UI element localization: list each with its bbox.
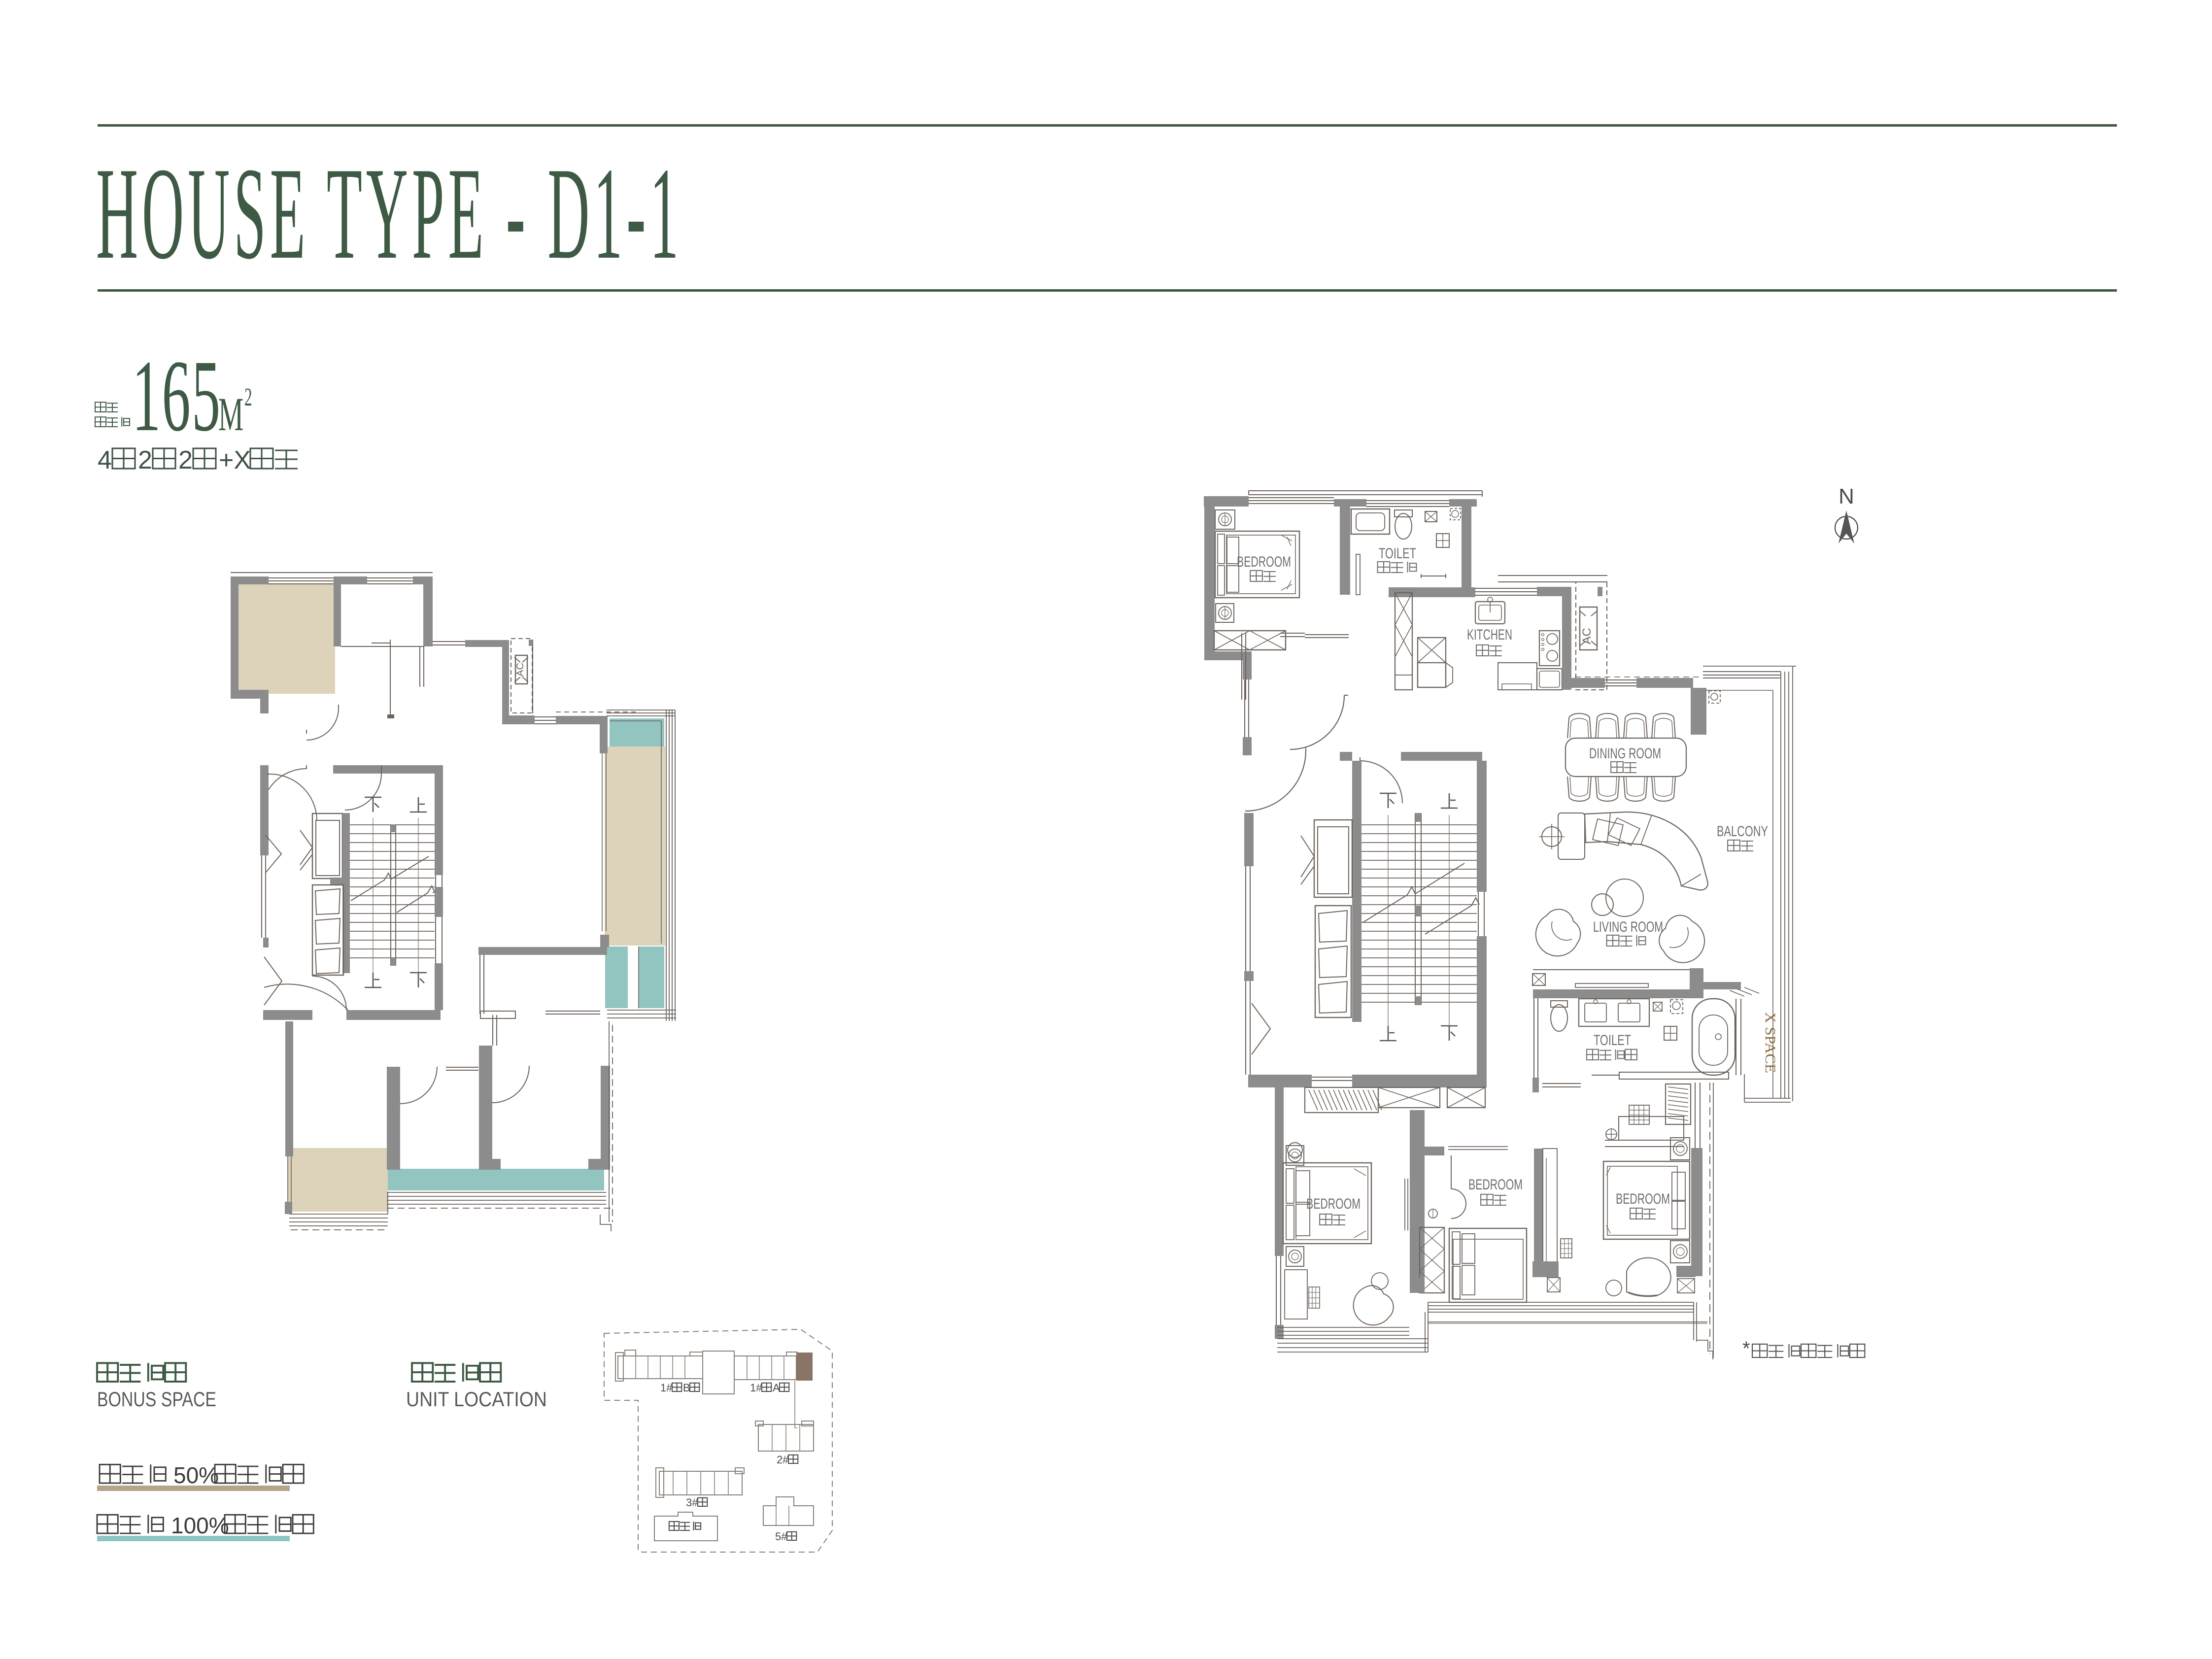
svg-text:BONUS SPACE: BONUS SPACE — [97, 1388, 216, 1411]
svg-text:100%: 100% — [171, 1513, 229, 1538]
svg-text:BEDROOM: BEDROOM — [1306, 1196, 1361, 1212]
svg-text:5#: 5# — [775, 1530, 787, 1543]
svg-text:165: 165 — [132, 339, 221, 453]
svg-text:3#: 3# — [686, 1496, 698, 1509]
svg-text:1#: 1# — [660, 1382, 673, 1394]
svg-text:HOUSE TYPE - D1-1: HOUSE TYPE - D1-1 — [96, 140, 682, 286]
svg-text:2: 2 — [138, 446, 152, 474]
svg-text:M: M — [218, 388, 243, 441]
svg-text:*: * — [1742, 1338, 1750, 1359]
svg-text:UNIT LOCATION: UNIT LOCATION — [406, 1388, 547, 1411]
svg-text:2: 2 — [178, 446, 193, 474]
svg-text:50%: 50% — [173, 1462, 219, 1488]
svg-text:B: B — [683, 1382, 690, 1394]
svg-text:X SPACE: X SPACE — [1762, 1012, 1778, 1073]
svg-text:BALCONY: BALCONY — [1717, 823, 1768, 840]
svg-text:+X: +X — [219, 446, 251, 474]
svg-text:TOILET: TOILET — [1379, 545, 1416, 562]
svg-text:BEDROOM: BEDROOM — [1616, 1191, 1670, 1207]
svg-text:N: N — [1838, 484, 1854, 508]
svg-text:4: 4 — [98, 446, 112, 474]
svg-text:KITCHEN: KITCHEN — [1467, 627, 1512, 643]
svg-text:1#: 1# — [750, 1382, 762, 1394]
svg-text:TOILET: TOILET — [1594, 1032, 1631, 1049]
svg-text:2#: 2# — [777, 1454, 789, 1466]
svg-text:DINING ROOM: DINING ROOM — [1589, 745, 1661, 762]
svg-text:2: 2 — [244, 383, 252, 411]
svg-text:BEDROOM: BEDROOM — [1237, 554, 1291, 570]
svg-text:A: A — [773, 1382, 780, 1394]
svg-text:BEDROOM: BEDROOM — [1468, 1177, 1523, 1193]
svg-text:AC: AC — [515, 663, 526, 677]
svg-text:LIVING ROOM: LIVING ROOM — [1593, 919, 1663, 935]
